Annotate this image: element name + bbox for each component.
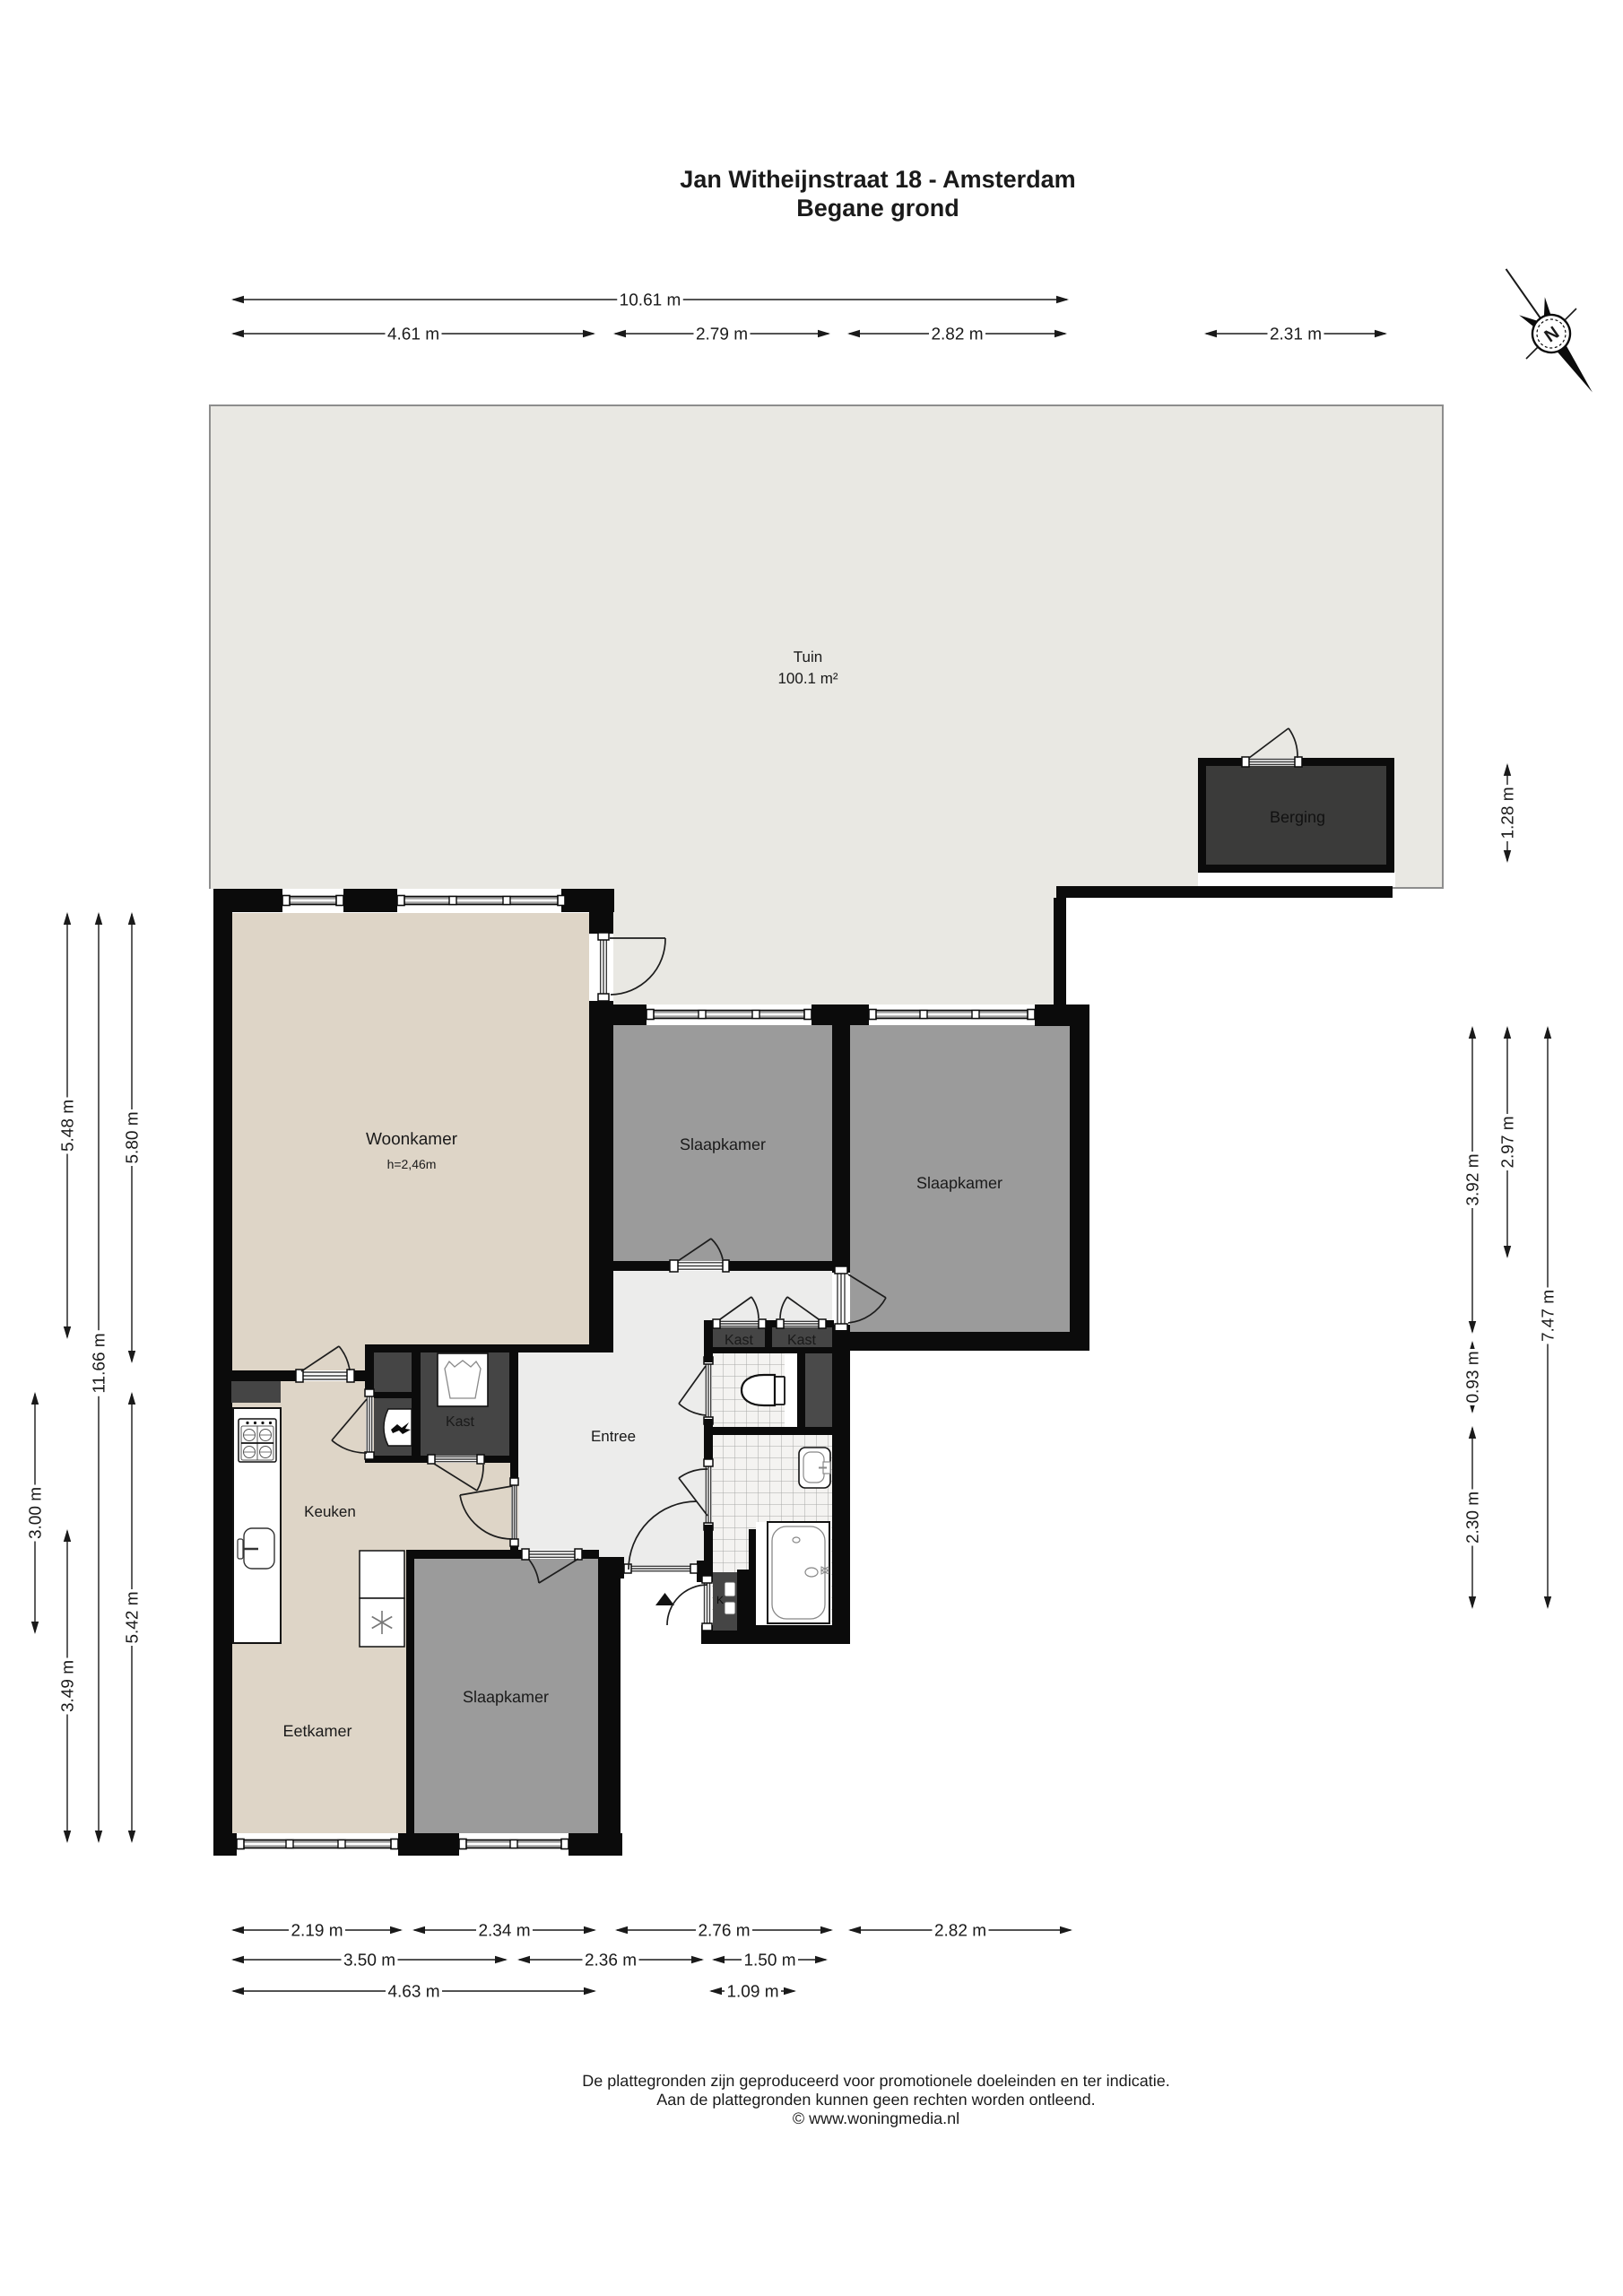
svg-text:1.09 m: 1.09 m [726, 1983, 778, 2002]
svg-text:h=2,46m: h=2,46m [387, 1157, 437, 1171]
svg-text:10.61 m: 10.61 m [620, 291, 681, 310]
svg-text:Tuin: Tuin [794, 648, 822, 665]
svg-text:4.63 m: 4.63 m [387, 1983, 439, 2002]
svg-text:Berging: Berging [1270, 808, 1325, 826]
svg-text:Woonkamer: Woonkamer [366, 1130, 458, 1149]
svg-text:0.93 m: 0.93 m [1464, 1351, 1483, 1403]
svg-text:2.36 m: 2.36 m [585, 1952, 637, 1970]
svg-text:Kast: Kast [787, 1333, 817, 1348]
svg-text:5.42 m: 5.42 m [124, 1591, 143, 1643]
svg-text:5.80 m: 5.80 m [124, 1111, 143, 1163]
svg-text:2.79 m: 2.79 m [696, 326, 748, 344]
svg-text:2.34 m: 2.34 m [478, 1922, 530, 1941]
svg-text:Begane grond: Begane grond [796, 195, 959, 222]
svg-text:De plattegronden zijn geproduc: De plattegronden zijn geproduceerd voor … [582, 2072, 1169, 2090]
svg-text:7.47 m: 7.47 m [1540, 1290, 1558, 1342]
svg-text:2.31 m: 2.31 m [1270, 326, 1322, 344]
svg-text:2.82 m: 2.82 m [934, 1922, 986, 1941]
svg-text:Kast: Kast [446, 1414, 475, 1430]
svg-text:Keuken: Keuken [304, 1503, 356, 1520]
svg-text:K: K [716, 1594, 724, 1606]
svg-text:100.1 m²: 100.1 m² [777, 670, 838, 687]
svg-text:1.28 m: 1.28 m [1499, 787, 1518, 839]
svg-text:Slaapkamer: Slaapkamer [916, 1174, 1002, 1192]
svg-text:3.50 m: 3.50 m [343, 1952, 395, 1970]
svg-text:Jan Witheijnstraat 18 - Amster: Jan Witheijnstraat 18 - Amsterdam [680, 166, 1075, 193]
svg-text:Aan de plattegronden kunnen ge: Aan de plattegronden kunnen geen rechten… [656, 2091, 1095, 2109]
svg-text:Entree: Entree [591, 1428, 636, 1445]
svg-text:2.76 m: 2.76 m [698, 1922, 750, 1941]
svg-text:2.30 m: 2.30 m [1464, 1492, 1483, 1544]
svg-text:3.92 m: 3.92 m [1464, 1153, 1483, 1205]
svg-text:© www.woningmedia.nl: © www.woningmedia.nl [793, 2109, 959, 2127]
svg-text:2.19 m: 2.19 m [291, 1922, 343, 1941]
svg-text:Eetkamer: Eetkamer [282, 1722, 352, 1740]
svg-text:Slaapkamer: Slaapkamer [680, 1135, 766, 1153]
svg-text:2.97 m: 2.97 m [1499, 1116, 1518, 1168]
svg-text:Kast: Kast [725, 1333, 754, 1348]
svg-text:5.48 m: 5.48 m [59, 1100, 78, 1152]
svg-text:2.82 m: 2.82 m [931, 326, 983, 344]
svg-text:1.50 m: 1.50 m [743, 1952, 795, 1970]
svg-text:11.66 m: 11.66 m [91, 1333, 109, 1393]
svg-text:Slaapkamer: Slaapkamer [463, 1688, 549, 1706]
svg-text:4.61 m: 4.61 m [387, 326, 439, 344]
svg-text:3.49 m: 3.49 m [59, 1660, 78, 1712]
svg-text:3.00 m: 3.00 m [27, 1487, 46, 1539]
